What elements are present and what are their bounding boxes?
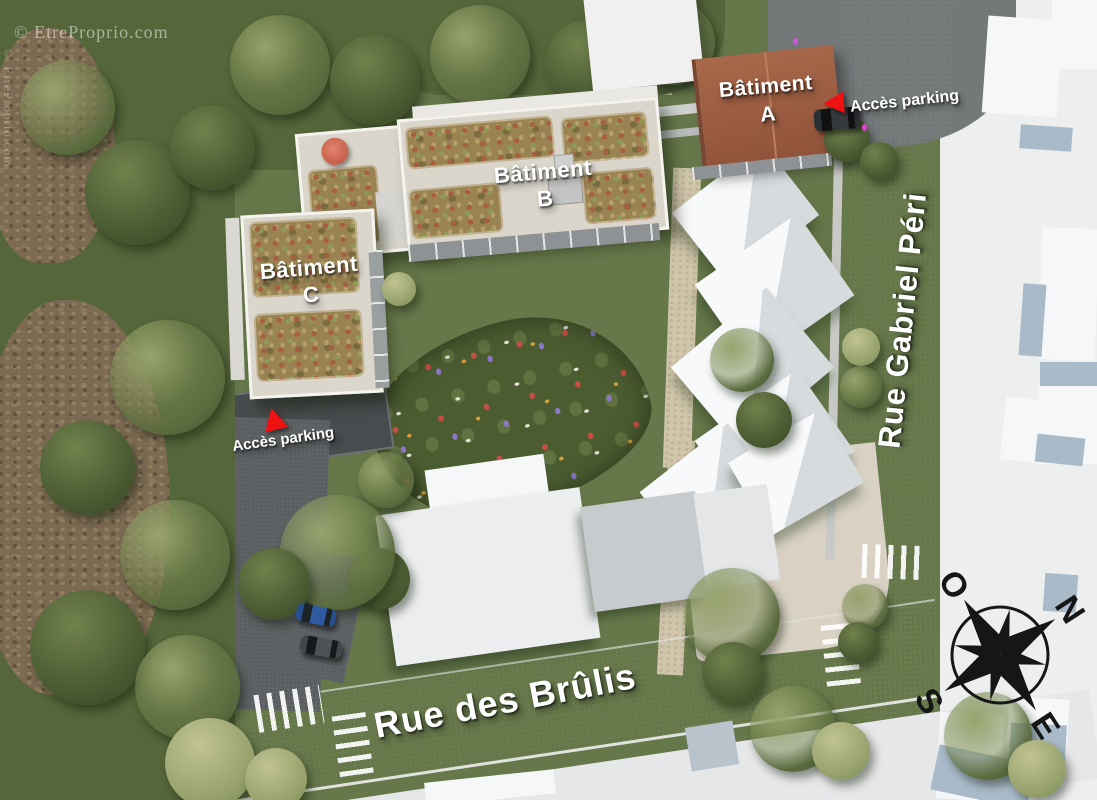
tree — [860, 142, 898, 180]
watermark-vertical: © EtreProprio.com — [0, 46, 16, 168]
tree — [710, 328, 774, 392]
tree — [230, 15, 330, 115]
watermark-horizontal: © EtreProprio.com — [14, 22, 169, 43]
building-shadow — [1035, 434, 1086, 467]
site-plan-aerial-view: Bâtiment A Bâtiment B Bâtiment C Accès p… — [0, 0, 1097, 800]
compass-letter-n: N — [1047, 589, 1092, 630]
pedestrian-figure — [862, 124, 867, 131]
tree — [20, 60, 115, 155]
compass-rose: N E S O — [885, 540, 1097, 770]
tree — [702, 642, 764, 704]
tree — [838, 622, 878, 662]
tree — [170, 105, 255, 190]
tree — [40, 420, 135, 515]
tree — [358, 452, 414, 508]
tree — [165, 718, 255, 800]
tree — [842, 328, 880, 366]
south-plaza-shadow — [685, 721, 739, 772]
tree — [120, 500, 230, 610]
east-building — [1038, 227, 1097, 361]
tree — [812, 722, 870, 780]
compass-letter-e: E — [1023, 706, 1067, 746]
building-shadow — [1019, 124, 1073, 152]
tree — [382, 272, 416, 306]
east-building — [1052, 0, 1097, 69]
green-roof-patch — [253, 308, 364, 382]
red-parasol — [320, 137, 349, 166]
tree — [430, 5, 530, 105]
tree — [110, 320, 225, 435]
compass-letter-o: O — [930, 564, 976, 607]
tree — [736, 392, 792, 448]
compass-letter-s: S — [907, 681, 951, 721]
annex-building — [583, 0, 704, 92]
pedestrian-figure — [793, 38, 798, 45]
tree — [330, 35, 420, 125]
tree — [30, 590, 145, 705]
access-arrow-north — [822, 91, 844, 114]
building-shadow — [1040, 362, 1097, 388]
